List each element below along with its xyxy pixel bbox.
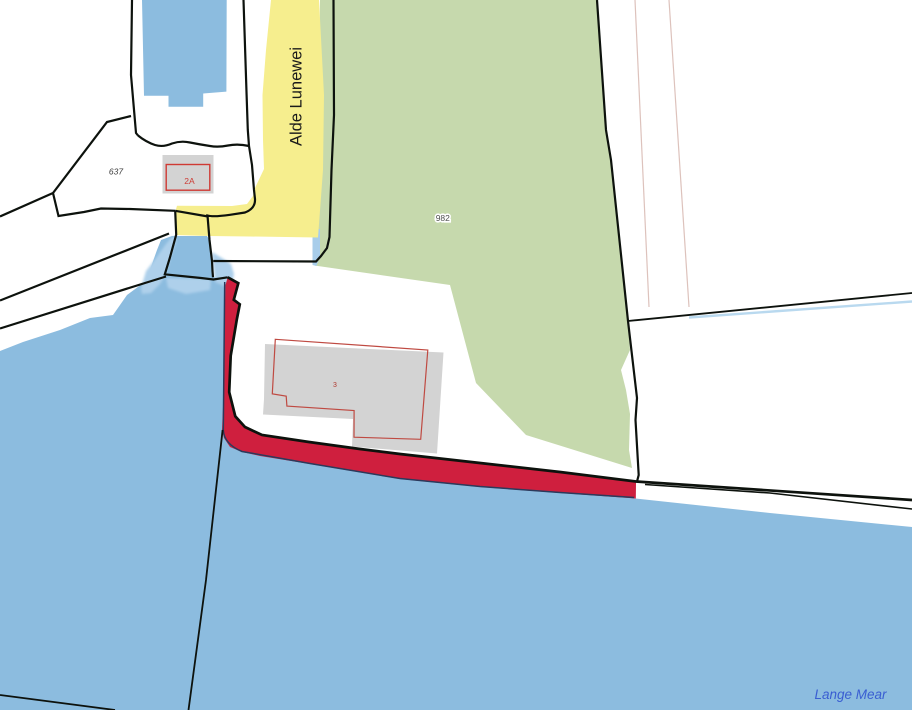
svg-text:3: 3 [333, 382, 337, 389]
svg-text:Alde Lunewei: Alde Lunewei [288, 47, 306, 146]
svg-text:982: 982 [436, 213, 450, 223]
svg-text:Lange Mear: Lange Mear [814, 687, 887, 702]
svg-text:2A: 2A [184, 176, 195, 186]
svg-text:637: 637 [109, 167, 123, 177]
